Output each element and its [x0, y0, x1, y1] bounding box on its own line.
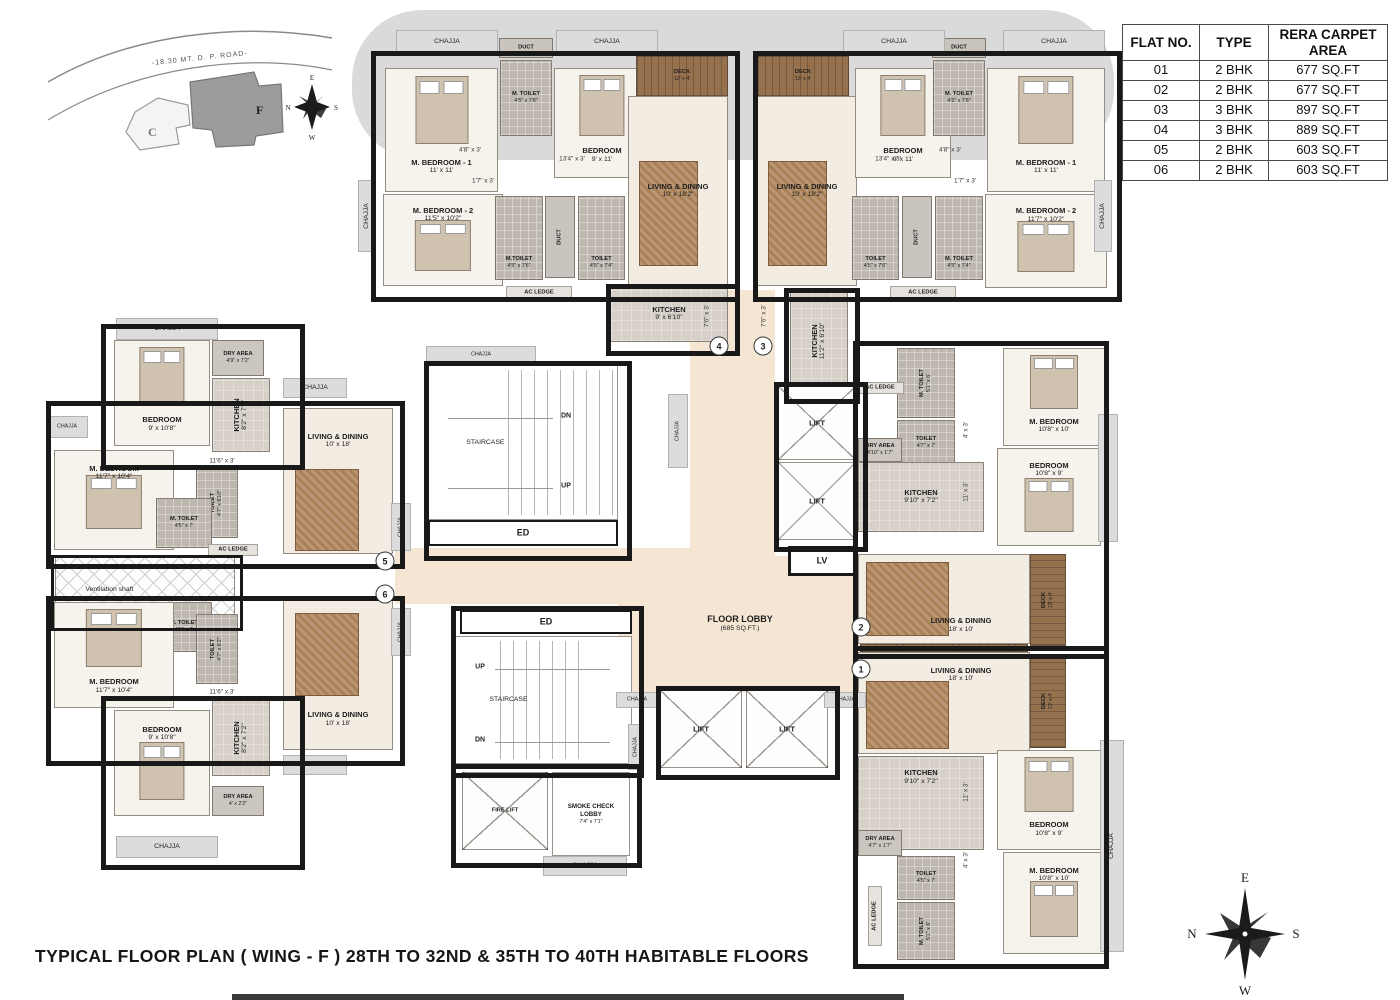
room-f6-living-dining: LIVING & DINING10' x 18': [283, 600, 393, 750]
chajja-band: CHAJJA: [1003, 30, 1105, 54]
room-label: ED: [540, 616, 553, 627]
room-label: AC LEDGE: [865, 384, 894, 391]
chajja-band: CHAJJA: [616, 692, 658, 708]
chajja-label: CHAJJA: [302, 761, 328, 769]
passage-dim: 11'6" x 3': [209, 458, 234, 465]
room-dims: 7'4" x 7'1": [558, 818, 624, 825]
room-f2-living-dining: LIVING & DINING18' x 10': [858, 554, 1030, 644]
room-dims: 18' x 10': [931, 675, 992, 683]
passage-dim: 1'7" x 3': [954, 178, 976, 185]
chajja-band: CHAJJA: [283, 378, 347, 398]
passage-dim: 7'6" x 3': [704, 305, 711, 327]
room-label: FIRE LIFT: [492, 807, 519, 814]
table-cell: 3 BHK: [1200, 100, 1269, 120]
room-f2-toilet: TOILET4'7" x 7': [897, 420, 955, 466]
room-f4-duct-bottom: DUCT: [545, 196, 575, 278]
table-cell: 02: [1123, 80, 1200, 100]
compass-s: S: [1292, 926, 1299, 941]
table-cell: 2 BHK: [1200, 80, 1269, 100]
room-label: LIFT: [693, 724, 709, 733]
ac-ledge: AC LEDGE: [856, 382, 904, 394]
fire-lift: FIRE LIFT: [462, 772, 548, 850]
chajja-band: CHAJJA: [1094, 180, 1112, 252]
room-dims: 11'7" x 10'2": [1016, 216, 1076, 224]
room-dims: 9' x 6'10": [652, 314, 685, 322]
room-f2-m-toilet: M. TOILET5'1" x 6': [897, 348, 955, 418]
bed-icon: [86, 475, 142, 530]
room-label: BEDROOM: [142, 415, 181, 424]
room-dims: 9'10" x 7'2": [904, 497, 938, 505]
table-row: 022 BHK677 SQ.FT: [1123, 80, 1388, 100]
floor-lobby-area: (685 SQ.FT.): [707, 625, 773, 633]
chajja-label: CHAJJA: [572, 862, 598, 870]
table-cell: 889 SQ.FT: [1269, 120, 1388, 140]
room-f1-living-dining: LIVING & DINING18' x 10': [858, 652, 1030, 754]
room-dims: 4'5" x 7': [916, 878, 936, 885]
compass-e: E: [310, 74, 314, 82]
wing-c-footprint: [126, 98, 190, 150]
bed-icon: [1030, 881, 1078, 937]
room-f2-deck: DECK13' x 4': [1030, 554, 1066, 646]
room-label: KITCHEN: [810, 323, 819, 360]
room-f5-m-toilet: M. TOILET4'5" x 7': [156, 498, 212, 548]
chajja-band: CHAJJA: [116, 318, 218, 340]
chajja-label: CHAJJA: [675, 421, 682, 441]
table-row: 043 BHK889 SQ.FT: [1123, 120, 1388, 140]
table-row: 012 BHK677 SQ.FT: [1123, 61, 1388, 81]
room-label: LIFT: [809, 418, 825, 427]
room-label: AC LEDGE: [524, 289, 553, 296]
room-label: M. TOILET: [945, 256, 973, 263]
room-dims: 4'5" x 7': [170, 523, 198, 530]
room-dims: 4'7" x 6'10": [217, 490, 224, 516]
bed-icon: [1025, 478, 1074, 532]
room-dims: 11'7" x 10'4": [89, 687, 139, 695]
key-plan: -18.30 MT. D. P. ROAD- C F E S W N: [40, 12, 340, 162]
flat-circle-1: 1: [852, 660, 871, 679]
room-dims: 11'2" x 6'10": [819, 323, 827, 360]
bed-icon: [1017, 221, 1074, 273]
room-dims: 4'7" x 1'7": [865, 843, 894, 850]
compass-star-icon: [1205, 888, 1285, 980]
stair-arrow-line: [448, 418, 553, 419]
room-dims: 5'1" x 6': [926, 369, 933, 397]
room-label: M. BEDROOM - 1: [1016, 158, 1076, 167]
table-cell: 2 BHK: [1200, 140, 1269, 160]
room-label: LIVING & DINING: [931, 666, 992, 675]
room-dims: 9' x 10'8": [142, 734, 181, 742]
room-f4-living-dining: LIVING & DINING10' x 18'2": [628, 96, 728, 286]
room-label: Ventilation shaft: [85, 586, 133, 594]
table-cell: 2 BHK: [1200, 160, 1269, 180]
room-label: M. TOILET: [170, 516, 198, 523]
chajja-label: CHAJJA: [835, 697, 855, 704]
chajja-label: CHAJJA: [398, 517, 405, 537]
room-label: AC LEDGE: [908, 289, 937, 296]
room-label: KITCHEN: [232, 398, 241, 431]
ac-ledge: AC LEDGE: [890, 286, 956, 300]
entrance-door-band-lower: ED: [460, 610, 632, 634]
room-label: AC LEDGE: [218, 546, 247, 553]
chajja-band: CHAJJA: [391, 503, 411, 551]
rug: [295, 469, 360, 550]
room-f1-toilet: TOILET4'5" x 7': [897, 856, 955, 900]
room-label: DECK: [1041, 592, 1048, 608]
room-label: DRY AREA: [865, 836, 894, 843]
flat-circle-6: 6: [376, 585, 395, 604]
rug: [295, 613, 360, 696]
room-f5-living-dining: LIVING & DINING10' x 18': [283, 408, 393, 554]
room-label: M. TOILET: [170, 620, 198, 627]
chajja-label: CHAJJA: [633, 737, 640, 757]
room-dims: 4'5" x 7'4": [945, 263, 973, 270]
room-label: M. TOILET: [512, 91, 540, 98]
room-f3-m-toilet-bottom: M. TOILET4'5" x 7'4": [935, 196, 983, 280]
stair-up-label: UP: [475, 664, 485, 671]
room-f3-duct-bottom: DUCT: [902, 196, 932, 278]
bed-icon: [139, 742, 184, 800]
room-label: TOILET: [916, 871, 936, 878]
road-label: -18.30 MT. D. P. ROAD-: [152, 50, 248, 67]
room-dims: 13' x 4': [1048, 693, 1055, 709]
passage-dim: 4' x 3': [963, 852, 970, 868]
room-dims: 10' x 18': [308, 720, 369, 728]
room-dims: 13' x 4': [795, 76, 811, 83]
room-f6-bedroom: BEDROOM9' x 10'8": [114, 710, 210, 816]
room-f2-dry-area: DRY AREA4'10" x 1'7": [858, 438, 902, 462]
ac-ledge: AC LEDGE: [868, 886, 882, 946]
table-cell: 677 SQ.FT: [1269, 61, 1388, 81]
compass-e: E: [1241, 872, 1249, 885]
plan-title: TYPICAL FLOOR PLAN ( WING - F ) 28TH TO …: [35, 946, 809, 967]
room-label: BEDROOM: [582, 146, 621, 155]
floor-lobby: FLOOR LOBBY(685 SQ.FT.): [618, 556, 862, 692]
room-label: TOILET: [210, 637, 217, 660]
room-label: LIVING & DINING: [931, 616, 992, 625]
table-cell: 03: [1123, 100, 1200, 120]
bed-icon: [1025, 757, 1074, 812]
room-label: M. BEDROOM: [1029, 866, 1079, 875]
room-label: KITCHEN: [904, 768, 938, 777]
table-cell: 2 BHK: [1200, 61, 1269, 81]
ac-ledge: AC LEDGE: [208, 544, 258, 556]
bed-icon: [86, 609, 142, 667]
lift-1: LIFT: [660, 690, 742, 768]
bed-icon: [415, 220, 471, 271]
compass-n: N: [285, 104, 290, 112]
room-dims: 13' x 4': [1048, 592, 1055, 608]
room-label: M. BEDROOM: [1029, 417, 1079, 426]
room-label: AC LEDGE: [871, 901, 878, 930]
key-plan-compass-icon: E S W N: [285, 74, 338, 142]
chajja-label: CHAJJA: [1108, 833, 1116, 859]
chajja-label: CHAJJA: [1104, 465, 1112, 491]
room-dims: 9' x 10'8": [142, 425, 181, 433]
stair-up-label: UP: [561, 483, 571, 490]
room-label: SMOKE CHECK LOBBY: [558, 803, 624, 819]
room-f4-m-bedroom-1: M. BEDROOM - 111' x 11': [385, 68, 498, 192]
chajja-band: CHAJJA: [628, 724, 644, 770]
room-f6-m-bedroom: M. BEDROOM11'7" x 10'4": [54, 602, 174, 708]
chajja-band: CHAJJA: [668, 394, 688, 468]
room-f1-dry-area: DRY AREA4'7" x 1'7": [858, 830, 902, 856]
room-dims: 10'8" x 10': [1029, 875, 1079, 883]
bed-icon: [1030, 355, 1078, 409]
room-label: KITCHEN: [652, 305, 685, 314]
room-label: DUCT: [518, 44, 534, 51]
room-label: BEDROOM: [1029, 820, 1068, 829]
room-dims: 10' x 18': [308, 441, 369, 449]
lift-3: LIFT: [778, 386, 856, 460]
stair-treads: [508, 370, 613, 515]
room-dims: 5'1" x 6': [926, 917, 933, 945]
chajja-band: CHAJJA: [391, 608, 411, 656]
room-dims: 12' x 4': [674, 76, 690, 83]
room-label: LIVING & DINING: [308, 710, 369, 719]
room-label: LIFT: [779, 724, 795, 733]
chajja-band: CHAJJA: [116, 836, 218, 858]
staircase-lower: STAIRCASE: [455, 636, 632, 764]
room-f2-m-bedroom: M. BEDROOM10'8" x 10': [1003, 348, 1105, 446]
room-f5-kitchen: KITCHEN8'2" x 7'2": [212, 378, 270, 452]
room-f3-toilet: TOILET4'5" x 7'6": [852, 196, 899, 280]
room-label: M. BEDROOM: [89, 677, 139, 686]
compass-s: S: [334, 104, 338, 112]
room-dims: 8'2" x 7'2": [241, 721, 249, 754]
passage-dim: 13'4" x 3': [875, 156, 901, 163]
room-dims: 4'5" x 7'6": [864, 263, 887, 270]
room-label: DUCT: [913, 229, 920, 245]
room-dims: 10'8" x 9': [1029, 471, 1068, 479]
passage-dim: 13'4" x 3': [559, 156, 585, 163]
rug: [639, 161, 698, 266]
room-label: LIVING & DINING: [648, 182, 709, 191]
table-cell: 603 SQ.FT: [1269, 160, 1388, 180]
room-label: ED: [517, 527, 530, 538]
room-label: KITCHEN: [904, 488, 938, 497]
chajja-label: CHAJJA: [154, 843, 180, 851]
room-dims: 10'8" x 10': [1029, 426, 1079, 434]
room-dims: 9' x 11': [582, 156, 621, 164]
room-dims: 4' x 2'2": [223, 801, 252, 808]
room-label: LIVING & DINING: [777, 182, 838, 191]
room-label: STAIRCASE: [489, 696, 527, 704]
col-flat-no: FLAT NO.: [1123, 25, 1200, 61]
passage-dim: 7'6" x 3': [761, 305, 768, 327]
lv-box: LV: [788, 546, 856, 576]
passage-dim: 11' x 3': [963, 782, 970, 801]
room-label: DRY AREA: [223, 351, 252, 358]
room-f6-kitchen: KITCHEN8'2" x 7'2": [212, 700, 270, 776]
ac-ledge: AC LEDGE: [506, 286, 572, 300]
chajja-band: CHAJJA: [1098, 414, 1118, 542]
room-dims: 11'7" x 10'4": [89, 473, 139, 481]
table-cell: 05: [1123, 140, 1200, 160]
chajja-label: CHAJJA: [302, 384, 328, 392]
room-f3-deck: DECK13' x 4': [757, 56, 849, 96]
chajja-band: CHAJJA: [283, 755, 347, 775]
bed-icon: [139, 347, 184, 405]
chajja-label: CHAJJA: [627, 697, 647, 704]
room-f4-m-toilet-top: M. TOILET4'5" x 7'8": [500, 60, 552, 136]
room-dims: 4'5" x 7'8": [945, 98, 973, 105]
chajja-band: CHAJJA: [46, 416, 88, 438]
chajja-band: CHAJJA: [543, 856, 627, 876]
chajja-label: CHAJJA: [1099, 203, 1107, 229]
room-label: M. BEDROOM - 2: [1016, 206, 1076, 215]
room-label: DECK: [674, 69, 690, 76]
chajja-label: CHAJJA: [594, 38, 620, 46]
chajja-label: CHAJJA: [363, 203, 371, 229]
room-dims: 10' x 18'2": [777, 191, 838, 199]
room-f1-m-toilet: M. TOILET5'1" x 6': [897, 902, 955, 960]
room-f4-m-bedroom-2: M. BEDROOM - 211'5" x 10'2": [383, 194, 503, 286]
room-label: TOILET: [864, 256, 887, 263]
room-f1-deck: DECK13' x 4': [1030, 654, 1066, 748]
deck-bridge: [860, 644, 1028, 652]
flat-circle-2: 2: [852, 618, 871, 637]
room-label: TOILET: [916, 436, 936, 443]
room-f5-bedroom: BEDROOM9' x 10'8": [114, 340, 210, 446]
flat-circle-4: 4: [710, 337, 729, 356]
table-cell: 677 SQ.FT: [1269, 80, 1388, 100]
room-dims: 4'5" x 7'6": [506, 263, 532, 270]
room-f3-kitchen: KITCHEN11'2" x 6'10": [790, 292, 848, 390]
room-label: DECK: [795, 69, 811, 76]
passage-dim: 4'8" x 3': [459, 147, 481, 154]
compass-rose: E S W N: [1180, 872, 1310, 997]
table-cell: 04: [1123, 120, 1200, 140]
table-cell: 01: [1123, 61, 1200, 81]
chajja-band: CHAJJA: [824, 692, 866, 708]
chajja-band: CHAJJA: [396, 30, 498, 54]
room-dims: 4'5" x 7'4": [590, 263, 613, 270]
room-f3-m-bedroom-2: M. BEDROOM - 211'7" x 10'2": [985, 194, 1107, 288]
stair-dn-label: DN: [475, 737, 485, 744]
col-type: TYPE: [1200, 25, 1269, 61]
stair-arrow-line: [495, 669, 610, 670]
room-f6-dry-area: DRY AREA4' x 2'2": [212, 786, 264, 816]
room-f5-dry-area: DRY AREA4'9" x 7'2": [212, 340, 264, 376]
room-label: M. BEDROOM - 1: [411, 158, 471, 167]
staircase-upper: STAIRCASE: [428, 365, 618, 520]
chajja-label: CHAJJA: [154, 325, 180, 333]
room-dims: 11'5" x 10'2": [413, 215, 473, 223]
room-dims: 10'8" x 9': [1029, 830, 1068, 838]
stair-dn-label: DN: [561, 413, 571, 420]
room-label: LV: [817, 555, 828, 566]
room-f2-bedroom: BEDROOM10'8" x 9': [997, 448, 1101, 546]
floor-plan-sheet: FLOOR LOBBY(685 SQ.FT.) M. BEDROOM - 111…: [0, 0, 1400, 1000]
rug: [866, 681, 950, 749]
room-label: BEDROOM: [142, 725, 181, 734]
room-dims: 10' x 18'2": [648, 191, 709, 199]
room-f4-toilet: TOILET4'5" x 7'4": [578, 196, 625, 280]
passage-dim: 11' x 3': [963, 482, 970, 501]
room-f1-bedroom: BEDROOM10'8" x 9': [997, 750, 1101, 850]
chajja-label: CHAJJA: [471, 351, 491, 358]
chajja-band: CHAJJA: [556, 30, 658, 54]
table-row: 052 BHK603 SQ.FT: [1123, 140, 1388, 160]
room-label: LIFT: [809, 496, 825, 505]
room-f3-m-bedroom-1: M. BEDROOM - 111' x 11': [987, 68, 1105, 192]
room-f4-deck: DECK12' x 4': [636, 56, 728, 96]
room-dims: 4'7" x 7': [916, 443, 936, 450]
stair-arrow-line: [495, 742, 610, 743]
room-dims: 4'9" x 7'2": [223, 358, 252, 365]
chajja-band: CHAJJA: [358, 180, 376, 252]
wing-f-label: F: [256, 103, 263, 117]
room-label: STAIRCASE: [466, 438, 504, 446]
room-f1-m-bedroom: M. BEDROOM10'8" x 10': [1003, 852, 1105, 954]
room-label: M. BEDROOM - 2: [413, 206, 473, 215]
entrance-door-band-upper: ED: [428, 520, 618, 546]
table-cell: 06: [1123, 160, 1200, 180]
room-label: BEDROOM: [883, 146, 922, 155]
room-f3-living-dining: LIVING & DINING10' x 18'2": [757, 96, 857, 286]
passage-dim: 4'8" x 3': [939, 147, 961, 154]
room-dims: 4'10" x 1'7": [865, 450, 894, 457]
room-label: M.TOILET: [506, 256, 532, 263]
room-dims: 11' x 11': [411, 167, 471, 175]
room-label: M. BEDROOM: [89, 464, 139, 473]
rera-area-table: FLAT NO. TYPE RERA CARPET AREA 012 BHK67…: [1122, 24, 1388, 181]
bed-icon: [579, 75, 624, 135]
flat-circle-3: 3: [754, 337, 773, 356]
compass-w: W: [309, 134, 316, 142]
compass-w: W: [1239, 983, 1252, 997]
room-f3-m-toilet-top: M. TOILET4'5" x 7'8": [933, 60, 985, 136]
room-dims: 18' x 10': [931, 626, 992, 634]
room-label: M. TOILET: [919, 917, 926, 945]
bed-icon: [415, 76, 468, 144]
room-dims: 8'2" x 7'2": [241, 398, 249, 431]
table-cell: 3 BHK: [1200, 120, 1269, 140]
chajja-label: CHAJJA: [398, 622, 405, 642]
room-label: KITCHEN: [232, 721, 241, 754]
chajja-label: CHAJJA: [1041, 38, 1067, 46]
room-label: M. TOILET: [919, 369, 926, 397]
room-dims: 4'5" x 7'8": [512, 98, 540, 105]
room-label: DUCT: [951, 44, 967, 51]
wing-c-label: C: [148, 125, 157, 139]
room-label: M. TOILET: [945, 91, 973, 98]
room-label: DRY AREA: [865, 443, 894, 450]
room-label: LIVING & DINING: [308, 432, 369, 441]
table-header-row: FLAT NO. TYPE RERA CARPET AREA: [1123, 25, 1388, 61]
table-row: 033 BHK897 SQ.FT: [1123, 100, 1388, 120]
compass-n: N: [1187, 926, 1197, 941]
wing-f-footprint: [190, 72, 283, 147]
room-label: DECK: [1041, 693, 1048, 709]
room-f4-duct-top: DUCT: [499, 38, 553, 58]
room-label: DUCT: [556, 229, 563, 245]
chajja-label: CHAJJA: [434, 38, 460, 46]
chajja-band: CHAJJA: [843, 30, 945, 54]
passage-dim: 1'7" x 3': [472, 178, 494, 185]
room-label: BEDROOM: [1029, 461, 1068, 470]
chajja-label: CHAJJA: [57, 424, 77, 431]
floor-lobby-label: FLOOR LOBBY: [707, 614, 773, 625]
flat-circle-5: 5: [376, 552, 395, 571]
col-carpet-area: RERA CARPET AREA: [1269, 25, 1388, 61]
table-row: 062 BHK603 SQ.FT: [1123, 160, 1388, 180]
room-label: DRY AREA: [223, 794, 252, 801]
chajja-band: CHAJJA: [426, 346, 536, 363]
smoke-check-lobby: SMOKE CHECK LOBBY7'4" x 7'1": [552, 772, 630, 856]
lift-4: LIFT: [778, 462, 856, 540]
room-dims: 9'10" x 7'2": [904, 778, 938, 786]
